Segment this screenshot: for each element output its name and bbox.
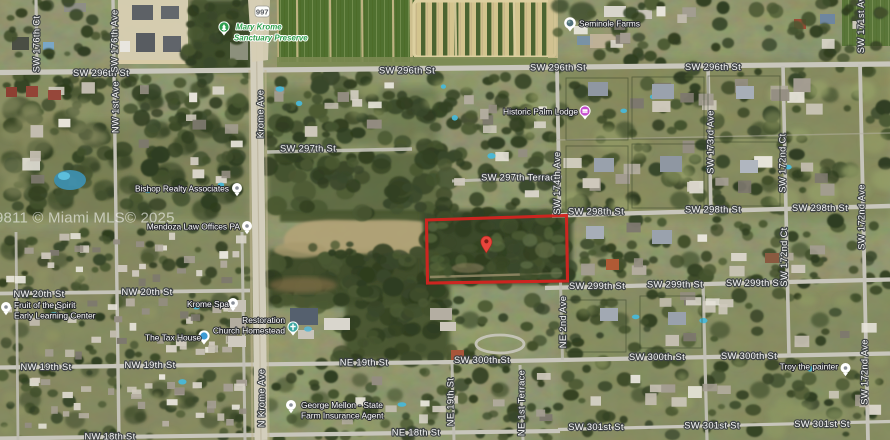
svg-text:Krome Ave: Krome Ave — [256, 90, 266, 138]
svg-text:NE 19th St: NE 19th St — [340, 358, 389, 368]
svg-text:NE 2nd Ave: NE 2nd Ave — [558, 296, 568, 348]
svg-text:SW 298th St: SW 298th St — [792, 203, 848, 213]
svg-text:997: 997 — [256, 8, 269, 17]
svg-text:SW 296th St: SW 296th St — [73, 68, 129, 78]
svg-text:SW 173rd Ave: SW 173rd Ave — [706, 110, 716, 173]
svg-text:Mary Krome: Mary Krome — [236, 23, 282, 32]
svg-text:Church Homestead: Church Homestead — [213, 326, 285, 336]
svg-text:SW 172nd Ct: SW 172nd Ct — [778, 133, 788, 192]
svg-text:NE 18th St: NE 18th St — [392, 428, 441, 438]
svg-text:Sanctuary Preserve: Sanctuary Preserve — [234, 34, 308, 43]
svg-text:SW 299th St: SW 299th St — [569, 281, 625, 291]
svg-text:Farm Insurance Agent: Farm Insurance Agent — [301, 411, 384, 421]
svg-text:SW 298th St: SW 298th St — [568, 207, 624, 217]
svg-text:SW 296th St: SW 296th St — [530, 63, 586, 73]
svg-text:SW 299th St: SW 299th St — [647, 280, 703, 290]
svg-text:Historic Palm Lodge: Historic Palm Lodge — [503, 107, 578, 117]
svg-text:SW 301st St: SW 301st St — [568, 422, 624, 432]
svg-text:SW 297th St: SW 297th St — [280, 144, 336, 154]
svg-text:SW 172nd Ave: SW 172nd Ave — [860, 339, 870, 405]
svg-text:SW 171st Ave: SW 171st Ave — [856, 0, 866, 53]
svg-text:SW 296th St: SW 296th St — [685, 62, 741, 72]
svg-text:N Krome Ave: N Krome Ave — [257, 369, 267, 427]
svg-text:SW 299th St: SW 299th St — [726, 278, 782, 288]
svg-text:SW 298th St: SW 298th St — [685, 205, 741, 215]
svg-text:The Tax House: The Tax House — [145, 333, 202, 343]
svg-text:NW 20th St: NW 20th St — [13, 289, 64, 299]
svg-text:Seminole Farms: Seminole Farms — [579, 19, 640, 29]
svg-text:NW 19th St: NW 19th St — [20, 362, 71, 372]
svg-text:NE 19th St: NE 19th St — [446, 378, 456, 427]
svg-text:SW 301st St: SW 301st St — [794, 419, 850, 429]
svg-text:SW 300th St: SW 300th St — [721, 351, 777, 361]
svg-text:Bishop Realty Associates: Bishop Realty Associates — [135, 184, 229, 194]
svg-text:SW 176th Ct: SW 176th Ct — [32, 16, 42, 73]
svg-text:Krome Spa: Krome Spa — [187, 299, 229, 309]
svg-text:SW 174th Ave: SW 174th Ave — [552, 152, 562, 215]
svg-text:NE 1st Terrace: NE 1st Terrace — [517, 370, 527, 436]
svg-text:SW 172nd Ct: SW 172nd Ct — [779, 227, 789, 286]
svg-text:SW 297th Terrace: SW 297th Terrace — [481, 173, 561, 183]
svg-text:George Mellon - State: George Mellon - State — [301, 400, 383, 410]
svg-text:SW 296th St: SW 296th St — [379, 66, 435, 76]
svg-text:NW 18th St: NW 18th St — [84, 432, 135, 440]
svg-text:NW 19th St: NW 19th St — [124, 360, 175, 370]
svg-text:NW 20th St: NW 20th St — [121, 287, 172, 297]
svg-text:Troy the painter: Troy the painter — [780, 362, 839, 372]
svg-text:SW 301st St: SW 301st St — [684, 421, 740, 431]
svg-text:Fruit of the Spirit: Fruit of the Spirit — [14, 300, 76, 310]
svg-text:SW 300th St: SW 300th St — [629, 352, 685, 362]
svg-text:NW 1st Ave: NW 1st Ave — [111, 81, 121, 133]
svg-text:Restoration: Restoration — [242, 315, 285, 325]
svg-text:SW 300th St: SW 300th St — [454, 355, 510, 365]
svg-text:9811 © Miami MLS© 2025: 9811 © Miami MLS© 2025 — [0, 210, 175, 227]
svg-text:SW 176th Ave: SW 176th Ave — [110, 10, 120, 73]
svg-text:SW 172nd Ave: SW 172nd Ave — [857, 184, 867, 250]
svg-text:Early Learning Center: Early Learning Center — [14, 311, 96, 321]
